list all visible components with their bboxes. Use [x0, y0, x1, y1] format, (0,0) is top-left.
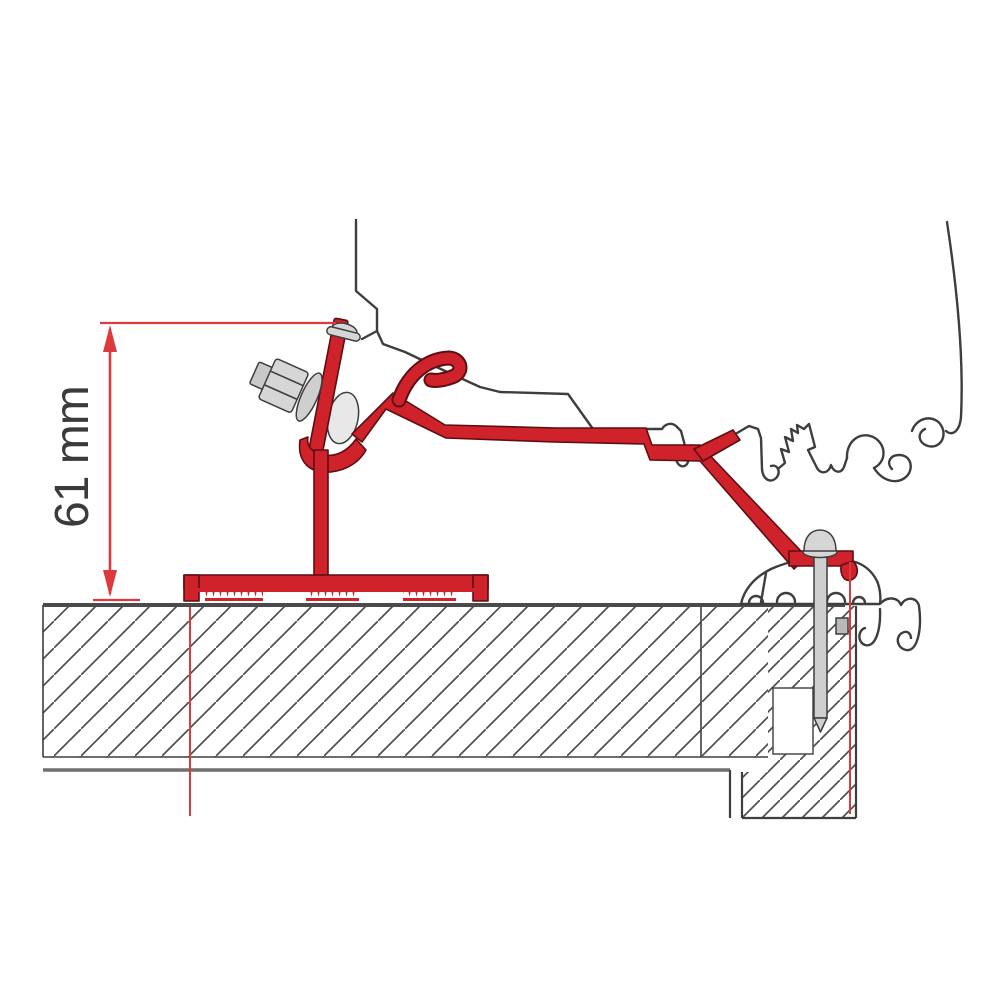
- wall-clip-detail: [836, 618, 848, 634]
- rail-gutter-curl: [880, 598, 920, 650]
- base-plate-bar: [184, 575, 488, 589]
- bracket-base-plate: [184, 575, 488, 601]
- case-left-edge: [356, 220, 377, 339]
- adapter-bracket: [184, 318, 857, 601]
- arrow-up: [103, 325, 117, 352]
- hex-bolt-assembly: [244, 349, 327, 424]
- installation-diagram: 61 mm: [0, 0, 1000, 1000]
- roof-hatch-area: [43, 606, 768, 757]
- screw-head-dome: [804, 530, 836, 551]
- case-channel-hook: [737, 426, 779, 480]
- dimension-61mm: 61 mm: [46, 323, 336, 600]
- case-roller-curls: [847, 435, 911, 481]
- diagram-canvas: 61 mm: [0, 0, 1000, 1000]
- base-serration-left: [205, 588, 263, 601]
- base-serration-center: [306, 588, 359, 601]
- bracket-branch-arm: [694, 430, 740, 461]
- case-right-edge: [946, 222, 962, 433]
- arrow-down: [103, 570, 117, 597]
- rail-gutter-inner-curl: [859, 609, 880, 645]
- case-end-hook: [912, 418, 944, 446]
- bracket-beam: [352, 393, 806, 569]
- screw-recess: [773, 688, 813, 754]
- screw-shaft: [814, 556, 827, 718]
- case-bottom-edge: [377, 331, 688, 466]
- case-serrated-profile: [779, 424, 847, 472]
- base-plate-right-tab: [473, 575, 488, 601]
- awning-case-outline: [356, 220, 962, 481]
- vehicle-roof-cross-section: [43, 605, 856, 818]
- dimension-label: 61 mm: [46, 386, 99, 528]
- base-plate-left-tab: [184, 575, 199, 601]
- base-serration-right: [403, 588, 456, 601]
- bracket-stem: [314, 450, 328, 578]
